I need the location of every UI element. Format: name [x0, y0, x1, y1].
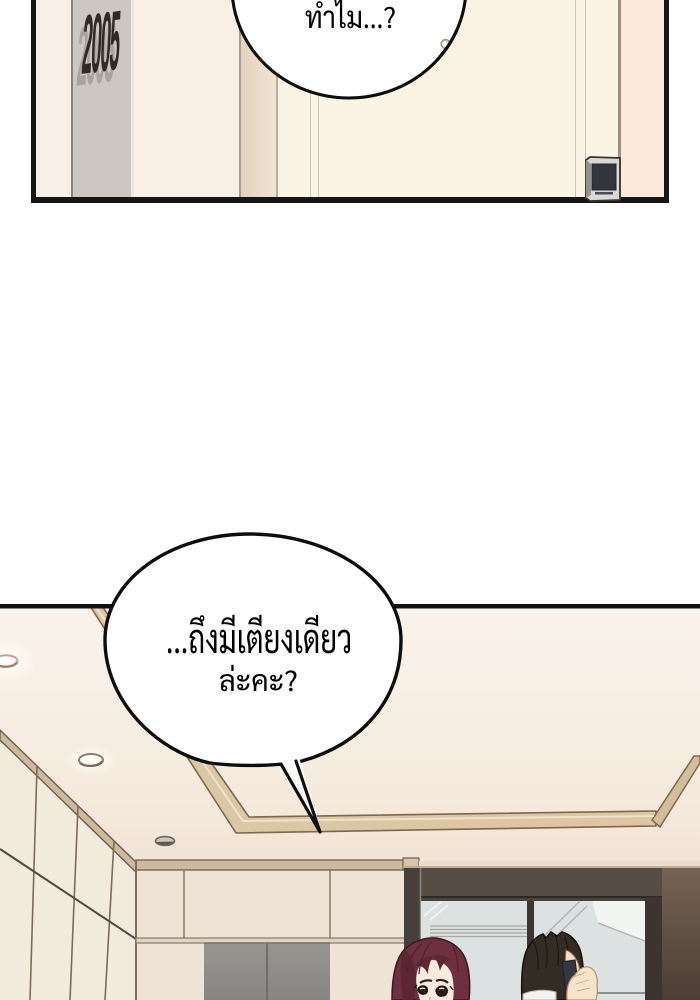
svg-text:2005: 2005 — [80, 0, 122, 92]
